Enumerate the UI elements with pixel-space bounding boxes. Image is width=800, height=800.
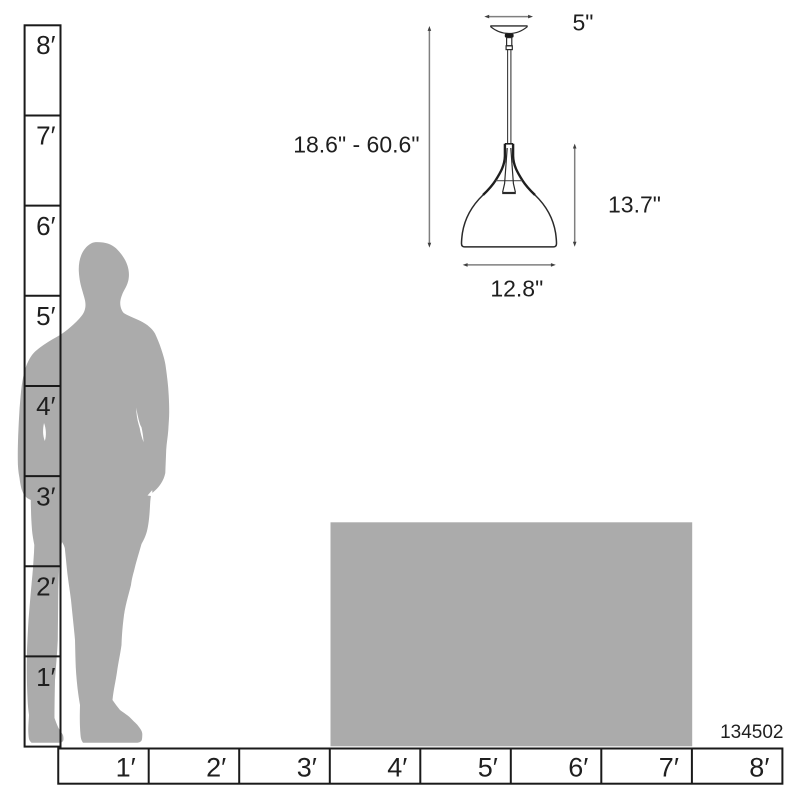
svg-text:1′: 1′	[36, 662, 55, 692]
svg-text:18.6" - 60.6": 18.6" - 60.6"	[293, 132, 419, 158]
svg-text:5′: 5′	[36, 301, 55, 331]
svg-text:3′: 3′	[36, 481, 55, 511]
svg-text:6′: 6′	[36, 211, 55, 241]
svg-text:8′: 8′	[749, 753, 769, 783]
svg-text:4′: 4′	[387, 753, 407, 783]
svg-text:7′: 7′	[659, 753, 679, 783]
svg-text:13.7": 13.7"	[608, 191, 661, 217]
svg-text:6′: 6′	[568, 753, 588, 783]
svg-text:1′: 1′	[116, 753, 136, 783]
svg-text:3′: 3′	[297, 753, 317, 783]
svg-text:4′: 4′	[36, 391, 55, 421]
svg-text:2′: 2′	[36, 572, 55, 602]
svg-text:8′: 8′	[36, 30, 55, 60]
svg-text:2′: 2′	[206, 753, 226, 783]
svg-text:7′: 7′	[36, 121, 55, 151]
svg-text:134502: 134502	[720, 722, 783, 743]
svg-text:5′: 5′	[478, 753, 498, 783]
svg-text:12.8": 12.8"	[490, 276, 543, 302]
svg-text:5": 5"	[573, 10, 594, 36]
